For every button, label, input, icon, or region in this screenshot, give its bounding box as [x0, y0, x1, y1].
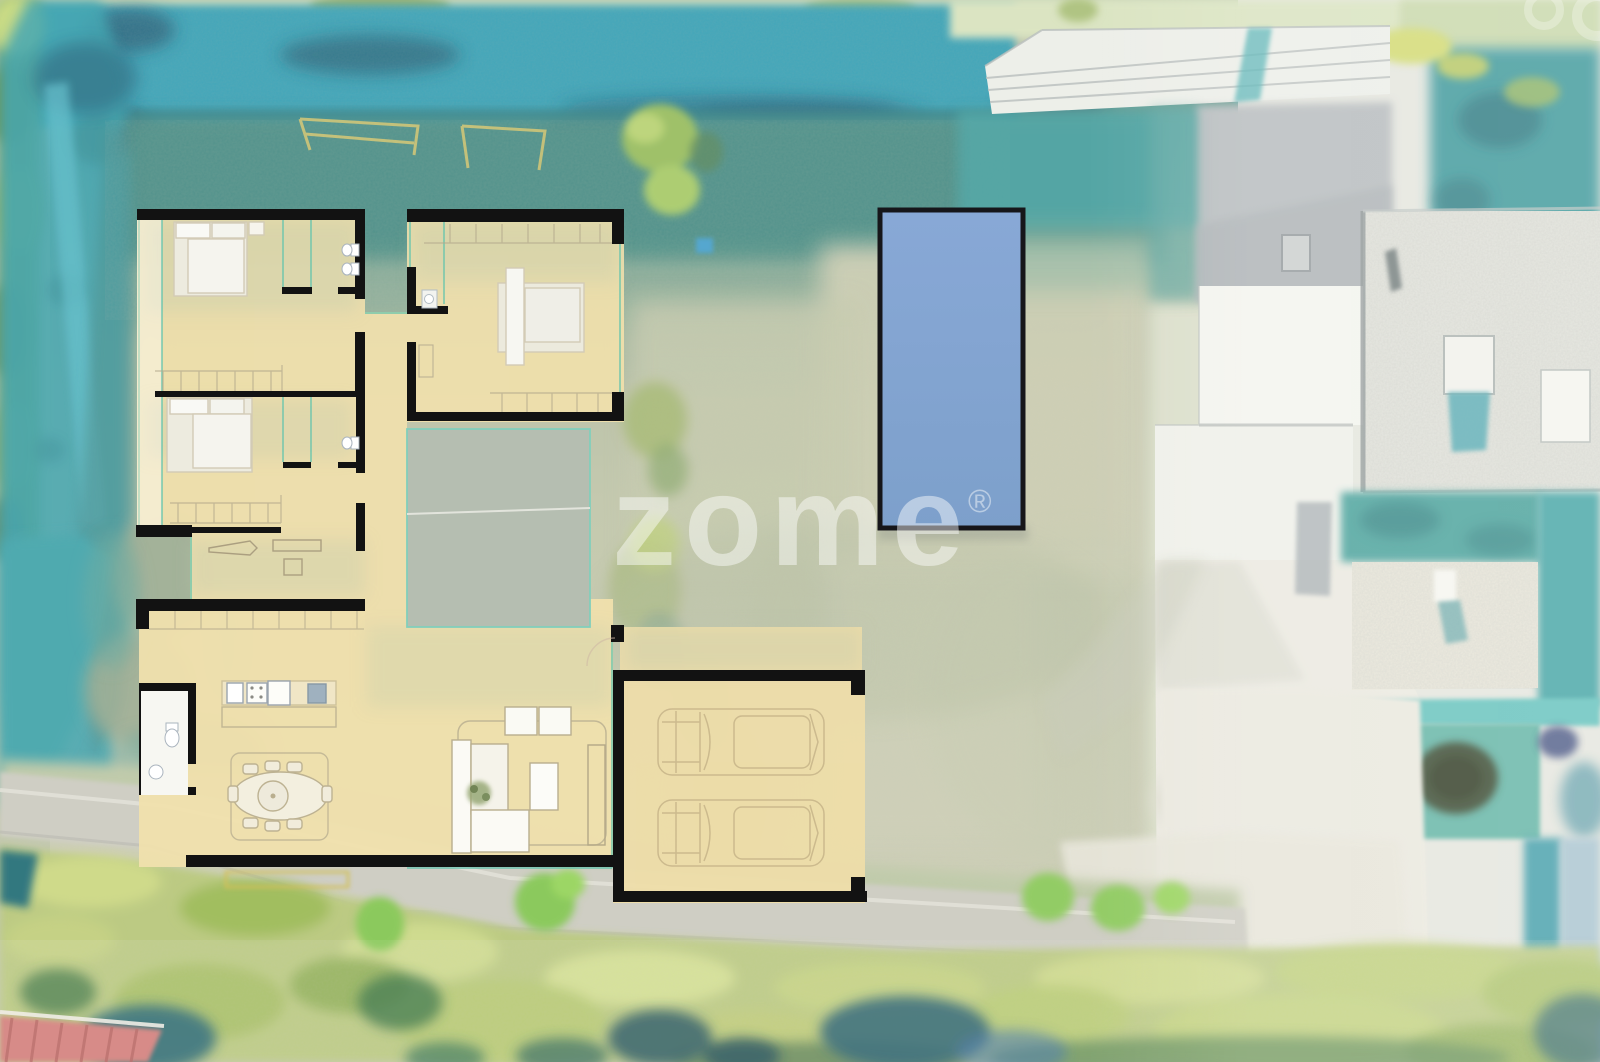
svg-text:zome: zome — [612, 450, 971, 593]
svg-text:®: ® — [968, 483, 992, 519]
